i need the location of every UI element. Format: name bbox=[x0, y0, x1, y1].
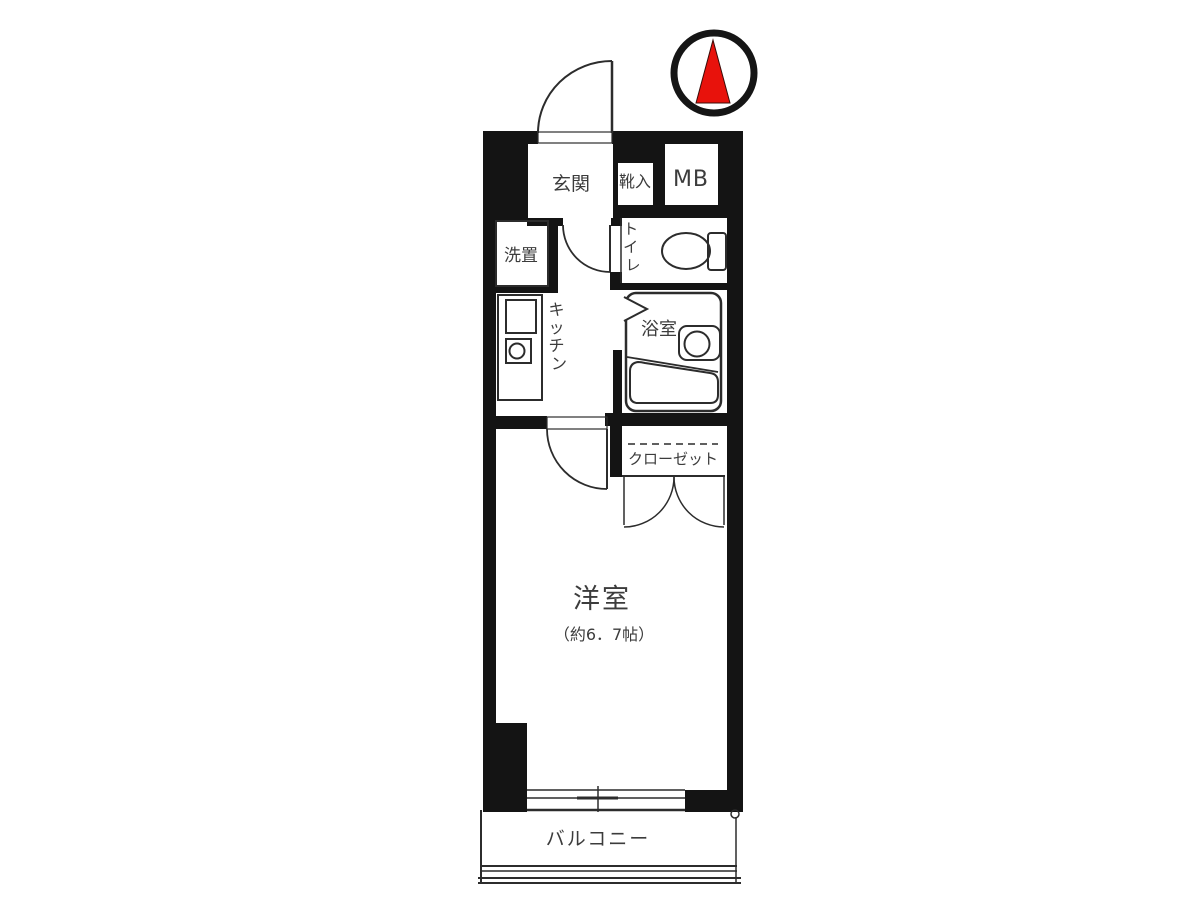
hallway-door-arc bbox=[563, 225, 610, 272]
main-room-size-label: （約6．7帖） bbox=[554, 625, 654, 644]
laundry-right-wall bbox=[548, 220, 558, 293]
bath-folding-door bbox=[624, 297, 647, 321]
closet-left-wall bbox=[610, 424, 622, 477]
hall-band-wall bbox=[613, 205, 727, 218]
balcony-label: バルコニー bbox=[546, 828, 651, 850]
room-top-wall-left bbox=[495, 416, 547, 429]
left-bottom-pillar bbox=[483, 723, 527, 812]
room-door-threshold bbox=[547, 417, 607, 429]
top-wall-left bbox=[483, 131, 538, 144]
entrance-corner-block bbox=[483, 143, 528, 222]
main-room-label: 洋室 bbox=[573, 584, 631, 615]
bathroom-fixtures bbox=[624, 293, 721, 411]
compass bbox=[674, 33, 754, 113]
entrance-door bbox=[538, 61, 612, 143]
laundry-label: 洗置 bbox=[504, 246, 538, 266]
entrance-door-arc bbox=[538, 61, 612, 133]
balcony-window bbox=[527, 786, 685, 812]
bathroom-label: 浴室 bbox=[641, 319, 677, 340]
window-corner-block bbox=[685, 790, 727, 812]
room-door-arc bbox=[547, 429, 607, 489]
bath-basin-circle bbox=[685, 332, 710, 357]
left-wall bbox=[483, 220, 496, 723]
toilet-bottom-wall bbox=[622, 283, 727, 290]
room-door bbox=[547, 417, 607, 489]
bath-door-jamb bbox=[613, 350, 622, 414]
right-wall-top bbox=[718, 131, 743, 205]
right-wall bbox=[727, 205, 743, 812]
toilet-label: ト イ レ bbox=[623, 220, 643, 274]
shoebox-top-fill bbox=[617, 143, 653, 163]
shoe-cabinet-label: 靴入 bbox=[619, 172, 651, 191]
kitchen-counter bbox=[498, 295, 542, 400]
shoebox-mb-divider bbox=[653, 143, 665, 205]
kitchen-sink bbox=[506, 300, 536, 333]
entrance-threshold bbox=[538, 132, 612, 143]
meter-box-label: MB bbox=[673, 167, 709, 192]
bathtub bbox=[630, 362, 718, 403]
genkan-label: 玄関 bbox=[552, 173, 590, 195]
floor-plan-page: 玄関 靴入 MB ト イ レ 洗置 キ ッ チ ン 浴室 クローゼット 洋室 （… bbox=[0, 0, 1200, 900]
toilet-bowl bbox=[662, 233, 710, 269]
bath-bottom-wall bbox=[605, 413, 727, 426]
kitchen-label: キ ッ チ ン bbox=[548, 300, 569, 373]
walls bbox=[483, 131, 743, 812]
floor-plan-canvas: 玄関 靴入 MB ト イ レ 洗置 キ ッ チ ン 浴室 クローゼット 洋室 （… bbox=[0, 0, 1200, 900]
closet-label: クローゼット bbox=[628, 450, 718, 468]
hallway-door bbox=[563, 225, 610, 272]
stove-burner bbox=[510, 344, 525, 359]
toilet-door-jamb bbox=[610, 272, 622, 290]
closet-door-arc-left bbox=[624, 477, 674, 527]
closet-door-arc-right bbox=[674, 477, 724, 527]
